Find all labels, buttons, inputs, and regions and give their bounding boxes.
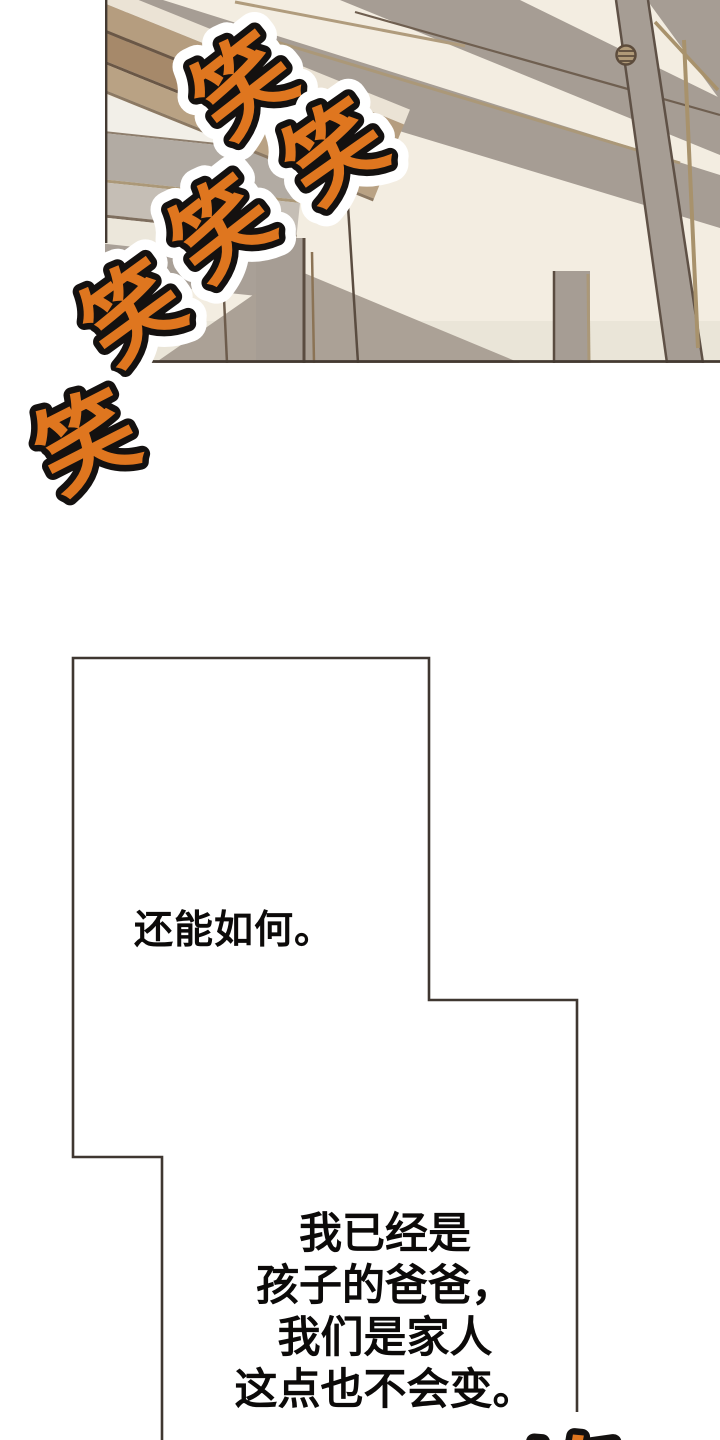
laugh-sfx-glyph: 笑 [513,1421,633,1440]
narration-block: 我已经是 孩子的爸爸， 我们是家人 这点也不会变。 [168,1208,602,1416]
laugh-sfx-halo: 笑 [17,370,156,516]
top-panel-illustration [0,0,720,365]
laugh-sfx: 笑笑 [513,1421,633,1440]
webtoon-page: 还能如何。 我已经是 孩子的爸爸， 我们是家人 这点也不会变。 笑笑笑笑笑笑笑笑… [0,0,720,1440]
narration-line: 我们是家人 [168,1312,602,1364]
frame-bolt-icon [617,46,636,65]
laugh-sfx-halo: 笑 [513,1421,633,1440]
window-mullion-right [554,271,590,363]
laugh-sfx: 笑笑 [17,370,156,516]
narration-line: 我已经是 [168,1208,602,1260]
speech-bubble-text: 还能如何。 [134,899,334,955]
laugh-sfx-glyph: 笑 [17,370,156,516]
narration-line: 孩子的爸爸， [168,1260,602,1312]
window-mullion-left [256,238,314,363]
narration-line: 这点也不会变。 [168,1364,602,1416]
